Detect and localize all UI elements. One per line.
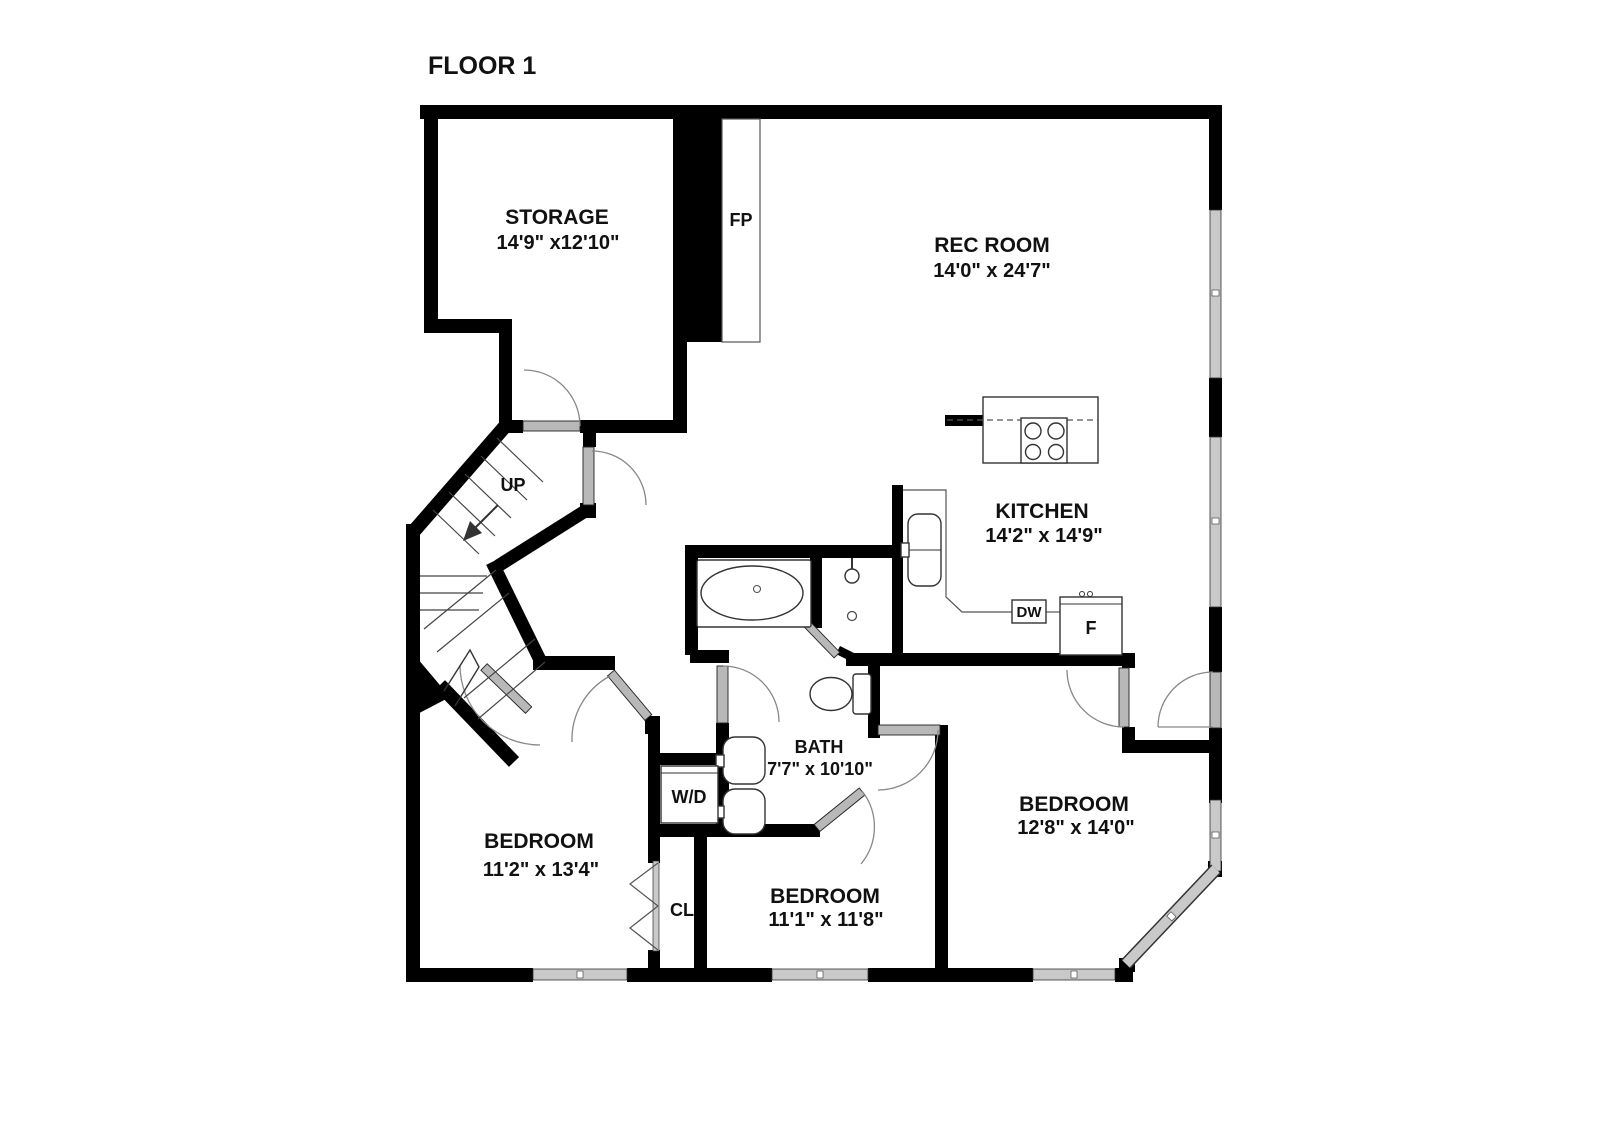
closet-bifold-track	[653, 861, 659, 951]
fireplace-label: FP	[729, 210, 752, 230]
bathtub-basin	[701, 566, 803, 620]
storage-door	[523, 421, 580, 431]
stairs-up-label: UP	[500, 475, 525, 495]
dishwasher-label: DW	[1017, 604, 1043, 621]
fridge-label: F	[1086, 618, 1097, 638]
toilet-tank	[853, 674, 871, 714]
exterior-door	[1210, 672, 1221, 728]
bedroom-right-dims: 12'8" x 14'0"	[1017, 817, 1134, 839]
bath-door	[717, 666, 728, 723]
bedroom-right-door	[1119, 668, 1129, 727]
bedroom-right-label: BEDROOM	[1019, 793, 1129, 816]
stair-hall-door	[583, 447, 594, 505]
faucet-icon	[901, 543, 909, 557]
kitchen-label: KITCHEN	[995, 500, 1088, 523]
bedroom-middle-door	[814, 788, 865, 831]
rec-room-label: REC ROOM	[934, 234, 1050, 257]
stair-direction-arrow	[474, 505, 498, 529]
burner	[1048, 423, 1064, 439]
rec-room-dims: 14'0" x 24'7"	[933, 260, 1050, 282]
bedroom-middle-closet-door	[878, 725, 940, 735]
vanity-sink-1	[723, 737, 765, 784]
shower-drain	[848, 612, 857, 621]
burner	[1025, 423, 1041, 439]
closet-label: CL	[670, 900, 694, 920]
floor-plan-page: FLOOR 1 STORAGE 14'9" x12'10" FP REC ROO…	[0, 0, 1600, 1130]
bedroom-left-door	[481, 664, 532, 714]
fireplace-box	[722, 119, 760, 342]
bedroom-left-dims: 11'2" x 13'4"	[483, 859, 599, 881]
fridge-handle	[1080, 592, 1085, 597]
bedroom-middle-label: BEDROOM	[770, 885, 880, 908]
floor-plan-drawing: FLOOR 1 STORAGE 14'9" x12'10" FP REC ROO…	[0, 0, 1600, 1130]
vanity-sink-2	[723, 789, 765, 834]
burner	[1049, 445, 1064, 460]
bath-dims: 7'7" x 10'10"	[767, 759, 873, 779]
storage-label: STORAGE	[505, 206, 608, 229]
storage-dims: 14'9" x12'10"	[496, 232, 619, 254]
shower-head	[845, 569, 859, 583]
faucet-icon	[716, 755, 724, 767]
windows	[533, 210, 1221, 980]
page-title: FLOOR 1	[428, 52, 536, 80]
burner	[1026, 445, 1041, 460]
bath-label: BATH	[795, 737, 844, 757]
bedroom-middle-dims: 11'1" x 11'8"	[768, 909, 883, 931]
bedroom-left-label: BEDROOM	[484, 830, 594, 853]
kitchen-dims: 14'2" x 14'9"	[985, 525, 1102, 547]
washer-dryer-label: W/D	[672, 787, 707, 807]
hall-door	[608, 670, 652, 720]
staircase	[420, 438, 545, 719]
toilet-bowl	[810, 678, 852, 711]
fridge-handle	[1088, 592, 1093, 597]
